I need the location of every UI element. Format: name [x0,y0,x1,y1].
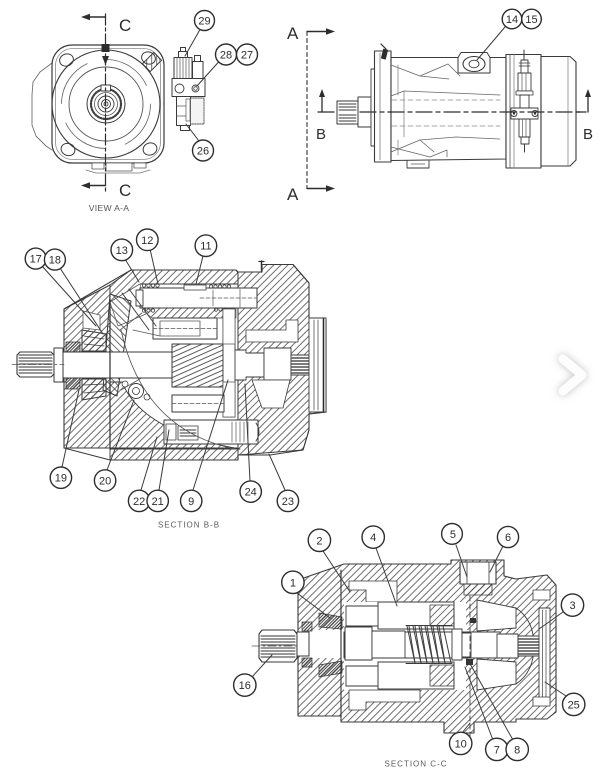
svg-text:19: 19 [55,473,67,485]
svg-text:20: 20 [99,476,111,488]
svg-text:26: 26 [197,146,209,158]
svg-text:3: 3 [569,600,575,612]
svg-text:11: 11 [200,241,211,253]
svg-text:VIEW A-A: VIEW A-A [89,203,130,213]
svg-text:1: 1 [290,577,296,589]
svg-text:14: 14 [506,14,518,26]
svg-text:16: 16 [239,680,251,692]
svg-text:28: 28 [220,50,232,62]
svg-text:A: A [287,185,299,204]
svg-text:13: 13 [116,245,128,257]
svg-text:27: 27 [241,50,253,62]
svg-text:7: 7 [494,744,500,756]
svg-text:9: 9 [188,496,194,508]
svg-text:10: 10 [455,738,467,750]
svg-text:18: 18 [49,255,61,267]
svg-text:8: 8 [514,744,520,756]
svg-text:17: 17 [30,254,42,266]
svg-text:B: B [583,126,593,143]
svg-text:4: 4 [370,532,376,544]
svg-text:23: 23 [282,496,294,508]
svg-text:6: 6 [505,532,511,544]
svg-text:15: 15 [525,14,537,26]
svg-text:SECTION B-B: SECTION B-B [158,521,220,530]
svg-text:SECTION C-C: SECTION C-C [385,760,448,769]
svg-text:2: 2 [316,535,322,547]
svg-text:12: 12 [141,235,153,247]
svg-text:C: C [119,181,131,200]
svg-text:A: A [287,24,299,43]
svg-text:24: 24 [245,487,257,499]
svg-text:22: 22 [133,496,145,508]
svg-text:C: C [119,16,131,35]
svg-text:21: 21 [152,496,164,508]
svg-text:29: 29 [198,16,210,28]
svg-text:5: 5 [450,529,456,541]
svg-text:B: B [316,126,326,143]
svg-text:25: 25 [568,699,580,711]
